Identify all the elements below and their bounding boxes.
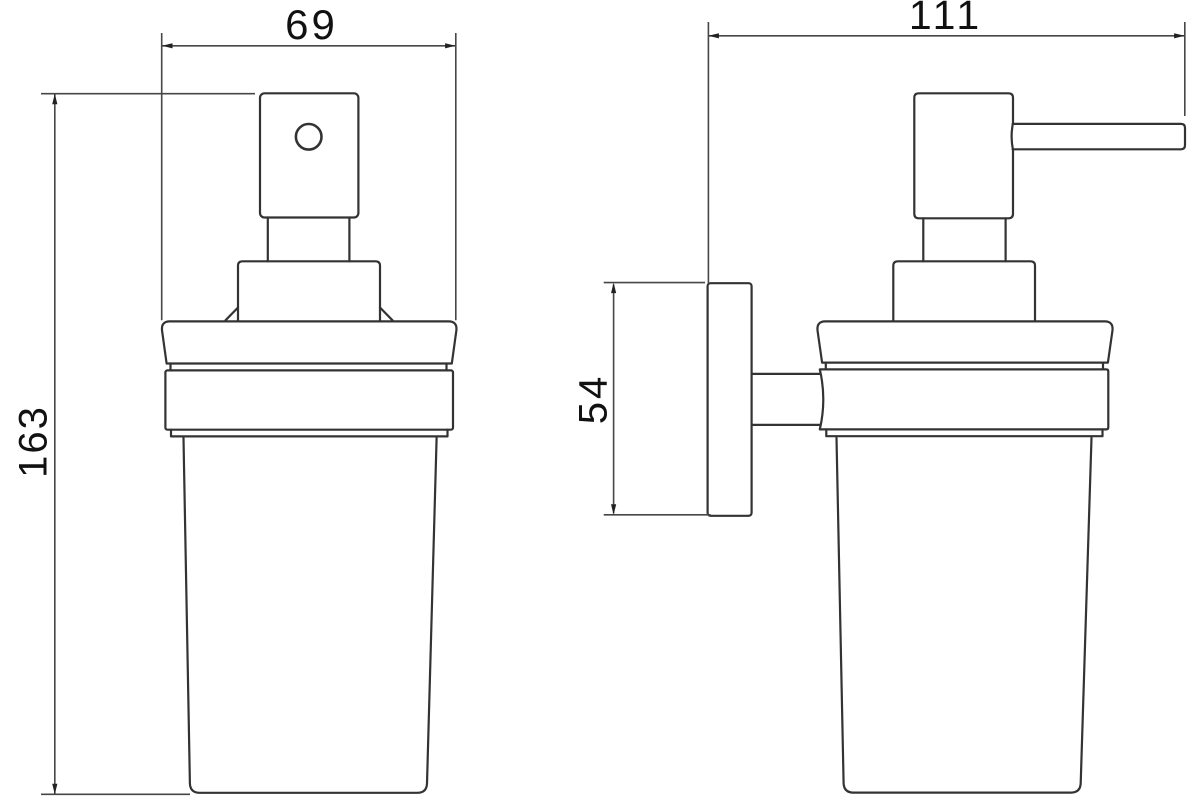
svg-text:111: 111	[909, 0, 983, 38]
svg-text:54: 54	[572, 374, 616, 425]
svg-text:69: 69	[285, 1, 338, 48]
svg-text:163: 163	[11, 405, 55, 478]
